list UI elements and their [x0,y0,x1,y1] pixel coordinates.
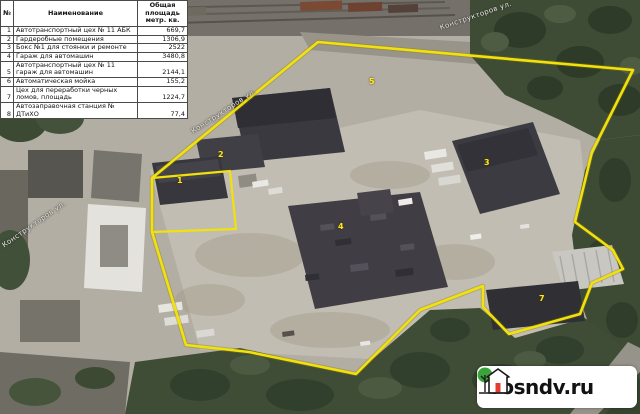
header-num: № [1,1,14,27]
table-row: 5 Автотранспортный цех № 11 гараж для ав… [1,61,188,77]
area-marker: 4 [338,222,344,231]
area-marker: 5 [369,77,375,86]
table-row: 8 Автозаправочная станция № ДТиХО 77,4 [1,102,188,118]
table-row: 4 Гараж для автомашин 3480,8 [1,52,188,61]
header-name: Наименование [14,1,138,27]
area-marker: 1 [177,176,183,185]
area-marker: 3 [484,158,490,167]
house-tree-logo-icon [477,366,511,396]
area-marker: 7 [539,294,545,303]
listing-map-screenshot: Конструкторов ул. Конструкторов ул. Конс… [0,0,640,414]
table-header-row: № Наименование Общая площадь метр. кв. [1,1,188,27]
site-watermark: rosndv.ru [477,366,637,408]
area-marker: 2 [218,150,224,159]
table-row: 1 Автотранспортный цех № 11 АБК 669,7 [1,26,188,35]
table-row: 7 Цех для переработки черных ломов, площ… [1,86,188,102]
header-area: Общая площадь метр. кв. [138,1,188,27]
building-areas-table: № Наименование Общая площадь метр. кв. 1… [0,0,188,119]
table-row: 6 Автоматическая мойка 155,2 [1,77,188,86]
